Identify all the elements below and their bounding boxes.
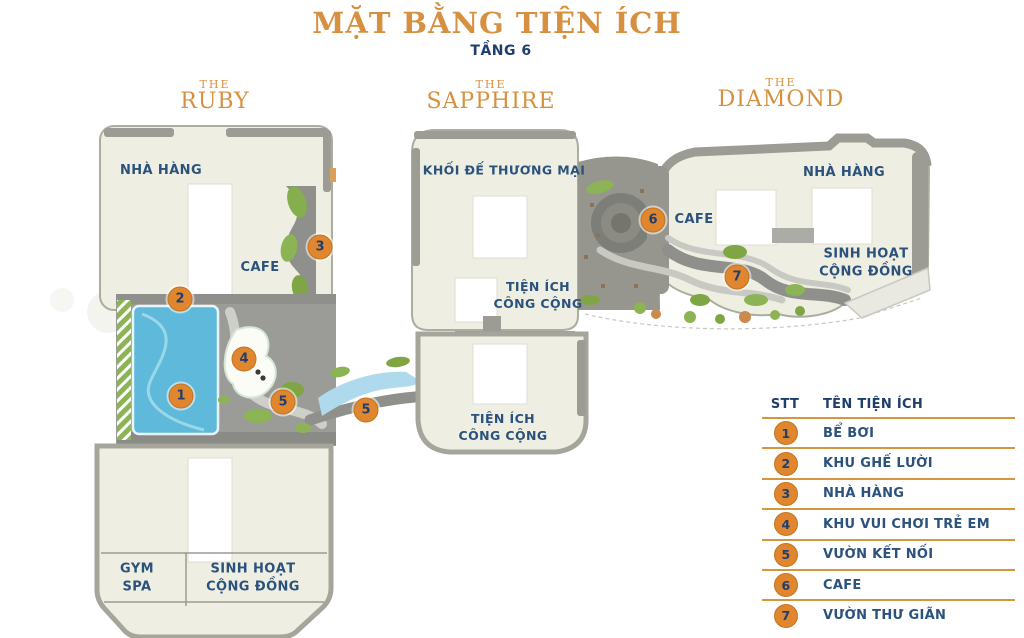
map-marker-5b: 5 xyxy=(354,398,379,423)
legend-num-badge: 2 xyxy=(774,452,798,476)
label-diamond-community: SINH HOẠT CỘNG ĐỒNG xyxy=(819,245,913,280)
pool-side-planter-shape xyxy=(117,300,131,440)
legend-num-badge: 4 xyxy=(774,512,798,536)
label-ruby-restaurant: NHÀ HÀNG xyxy=(120,162,202,180)
legend-table: STT TÊN TIỆN ÍCH 1 BỂ BƠI 2 KHU GHẾ LƯỜI… xyxy=(762,391,1015,630)
label-line: TIỆN ÍCH xyxy=(459,411,548,428)
label-line: SPA xyxy=(120,578,154,596)
legend-item-name: VƯỜN THƯ GIÃN xyxy=(823,608,1015,623)
tower-label-sapphire: THE SAPPHIRE xyxy=(426,78,555,114)
label-diamond-restaurant: NHÀ HÀNG xyxy=(803,164,885,182)
label-diamond-cafe: CAFE xyxy=(675,211,714,229)
legend-item-name: VƯỜN KẾT NỐI xyxy=(823,547,1015,562)
legend-row: 3 NHÀ HÀNG xyxy=(762,478,1015,508)
map-marker-7: 7 xyxy=(725,265,750,290)
legend-header: STT TÊN TIỆN ÍCH xyxy=(762,391,1015,417)
label-ruby-community: SINH HOẠT CỘNG ĐỒNG xyxy=(206,560,300,595)
map-marker-6: 6 xyxy=(641,208,666,233)
legend-item-name: CAFE xyxy=(823,578,1015,593)
legend-row: 5 VƯỜN KẾT NỐI xyxy=(762,539,1015,569)
legend-row: 4 KHU VUI CHƠI TRẺ EM xyxy=(762,508,1015,538)
map-marker-1: 1 xyxy=(169,384,194,409)
legend-item-name: KHU GHẾ LƯỜI xyxy=(823,456,1015,471)
label-line: CỘNG ĐỒNG xyxy=(819,263,913,281)
tower-name: DIAMOND xyxy=(718,87,845,112)
label-line: GYM xyxy=(120,560,154,578)
label-line: SINH HOẠT xyxy=(206,560,300,578)
legend-col-name: TÊN TIỆN ÍCH xyxy=(823,397,1015,412)
label-sapphire-commercial: KHỐI ĐẾ THƯƠNG MẠI xyxy=(423,163,586,180)
legend-num-badge: 7 xyxy=(774,604,798,628)
tower-label-ruby: THE RUBY xyxy=(180,78,249,114)
map-marker-2: 2 xyxy=(168,287,193,312)
legend-num-badge: 5 xyxy=(774,543,798,567)
label-sapphire-public-2: TIỆN ÍCH CÔNG CỘNG xyxy=(459,411,548,445)
tower-label-diamond: THE DIAMOND xyxy=(718,76,845,112)
label-line: CÔNG CỘNG xyxy=(494,296,583,313)
tree-shape xyxy=(50,288,74,312)
tower-name: RUBY xyxy=(180,89,249,114)
label-line: SINH HOẠT xyxy=(819,245,913,263)
pool-shape xyxy=(133,306,218,434)
label-line: CỘNG ĐỒNG xyxy=(206,578,300,596)
page-title: MẶT BẰNG TIỆN ÍCH xyxy=(312,6,682,40)
legend-row: 2 KHU GHẾ LƯỜI xyxy=(762,447,1015,477)
site-plan-page: MẶT BẰNG TIỆN ÍCH TẦNG 6 THE RUBY THE SA… xyxy=(0,0,1024,638)
legend-row: 6 CAFE xyxy=(762,569,1015,599)
legend-item-name: BỂ BƠI xyxy=(823,426,1015,441)
map-marker-5a: 5 xyxy=(271,390,296,415)
legend-row: 1 BỂ BƠI xyxy=(762,417,1015,447)
map-marker-3: 3 xyxy=(308,235,333,260)
label-sapphire-public-1: TIỆN ÍCH CÔNG CỘNG xyxy=(494,279,583,313)
label-line: CÔNG CỘNG xyxy=(459,428,548,445)
label-ruby-cafe: CAFE xyxy=(241,259,280,277)
legend-num-badge: 1 xyxy=(774,421,798,445)
tower-name: SAPPHIRE xyxy=(426,89,555,114)
legend-row: 7 VƯỜN THƯ GIÃN xyxy=(762,599,1015,629)
label-ruby-gym-spa: GYM SPA xyxy=(120,560,154,595)
map-marker-4: 4 xyxy=(232,347,257,372)
legend-num-badge: 3 xyxy=(774,482,798,506)
page-subtitle: TẦNG 6 xyxy=(470,43,531,59)
label-line: TIỆN ÍCH xyxy=(494,279,583,296)
legend-item-name: NHÀ HÀNG xyxy=(823,486,1015,501)
legend-num-badge: 6 xyxy=(774,573,798,597)
legend-col-stt: STT xyxy=(762,397,808,412)
legend-item-name: KHU VUI CHƠI TRẺ EM xyxy=(823,517,1015,532)
